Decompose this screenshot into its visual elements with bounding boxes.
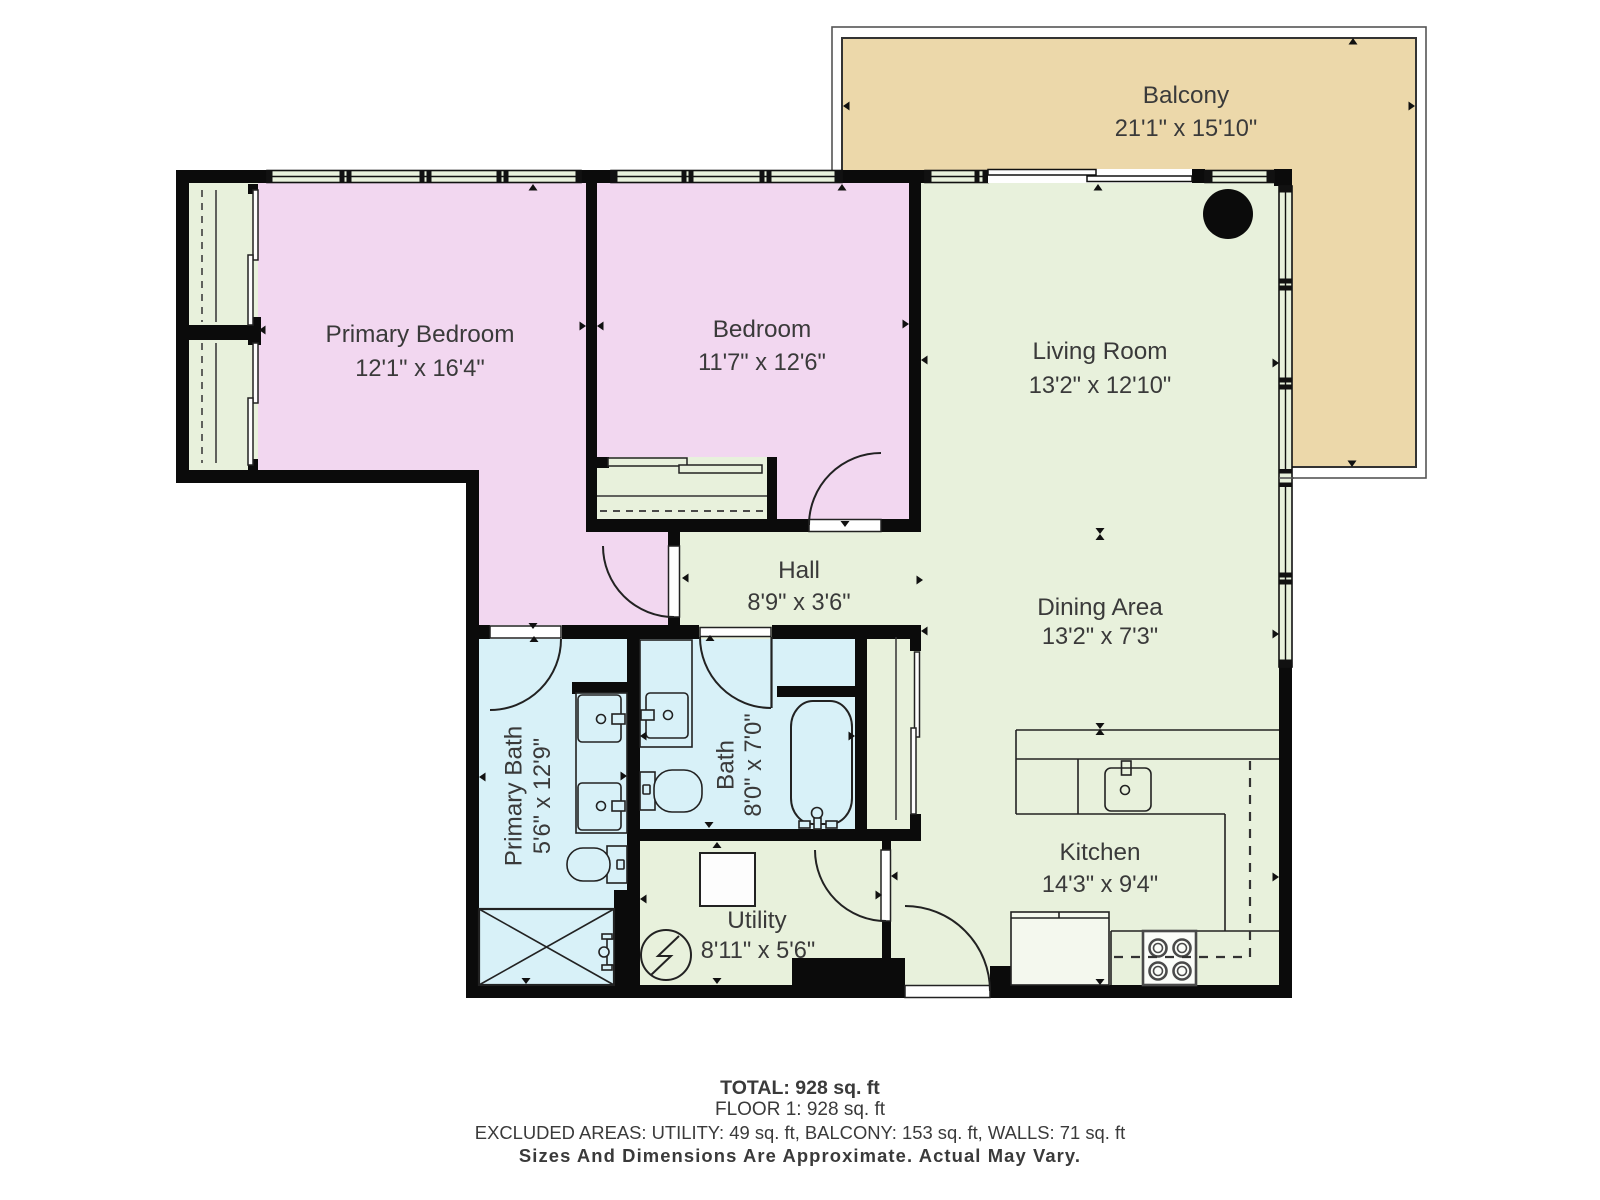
svg-text:TOTAL: 928 sq. ft: TOTAL: 928 sq. ft: [720, 1077, 880, 1099]
svg-text:11'7" x 12'6": 11'7" x 12'6": [698, 350, 826, 376]
svg-text:Hall: Hall: [778, 557, 820, 584]
svg-text:8'0" x 7'0": 8'0" x 7'0": [741, 713, 767, 816]
svg-text:EXCLUDED AREAS: UTILITY: 49 sq: EXCLUDED AREAS: UTILITY: 49 sq. ft, BALC…: [475, 1122, 1125, 1143]
svg-text:13'2" x 12'10": 13'2" x 12'10": [1029, 373, 1172, 399]
svg-text:14'3" x 9'4": 14'3" x 9'4": [1042, 872, 1158, 898]
svg-text:8'11" x 5'6": 8'11" x 5'6": [701, 938, 816, 964]
svg-text:Primary Bath: Primary Bath: [501, 726, 528, 866]
svg-text:Dining Area: Dining Area: [1037, 594, 1163, 621]
svg-text:Bedroom: Bedroom: [713, 316, 812, 343]
svg-text:Kitchen: Kitchen: [1059, 839, 1140, 866]
svg-text:Living Room: Living Room: [1032, 338, 1167, 365]
svg-text:Sizes And Dimensions Are Appro: Sizes And Dimensions Are Approximate. Ac…: [519, 1145, 1081, 1166]
svg-text:13'2" x 7'3": 13'2" x 7'3": [1042, 624, 1158, 650]
svg-text:Primary Bedroom: Primary Bedroom: [325, 321, 514, 348]
svg-text:8'9" x 3'6": 8'9" x 3'6": [747, 590, 850, 616]
svg-text:Balcony: Balcony: [1143, 82, 1230, 109]
svg-text:5'6" x 12'9": 5'6" x 12'9": [530, 738, 556, 854]
svg-text:Utility: Utility: [727, 907, 787, 934]
svg-text:FLOOR 1: 928 sq. ft: FLOOR 1: 928 sq. ft: [715, 1099, 886, 1120]
svg-text:Bath: Bath: [713, 740, 740, 790]
svg-text:21'1" x 15'10": 21'1" x 15'10": [1115, 116, 1258, 142]
svg-text:12'1" x 16'4": 12'1" x 16'4": [355, 356, 484, 382]
